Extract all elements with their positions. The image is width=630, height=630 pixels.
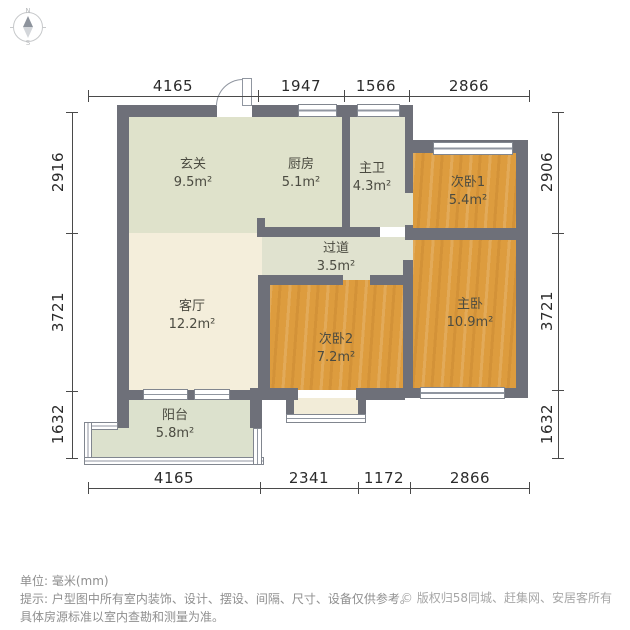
copyright-notice: © 版权归58同城、赶集网、安居客所有: [401, 589, 612, 606]
room-name: 厨房: [261, 156, 341, 174]
dim-tick: [260, 482, 261, 494]
room-name: 次卧2: [296, 331, 376, 349]
room-label-master: 主卧 10.9m²: [430, 296, 510, 332]
dim-tick: [88, 482, 89, 494]
wall-right: [516, 143, 528, 398]
hint-note-line2: 具体房源标准以室内查勘和测量为准。: [20, 608, 224, 625]
balcony-floor-ext: [90, 428, 129, 458]
dim-line-bottom: [88, 488, 530, 489]
dim-right-1: 2906: [539, 132, 555, 212]
room-name: 主卫: [332, 160, 412, 178]
master-bedroom-window: [420, 387, 505, 399]
dim-line-left: [72, 112, 73, 458]
wall-bedroom2-master-divider: [403, 260, 413, 390]
wall-living-bottom: [117, 390, 262, 400]
room-label-entry: 玄关 9.5m²: [153, 156, 233, 192]
dim-right-3: 1632: [539, 384, 555, 464]
wall-hall-south-left: [258, 275, 343, 285]
bedroom1-window: [433, 142, 513, 155]
room-label-kitchen: 厨房 5.1m²: [261, 156, 341, 192]
dim-top-3: 1566: [336, 77, 416, 95]
dim-tick: [66, 233, 78, 234]
wall-kitchen-bottom: [257, 227, 350, 237]
compass-south-label: S: [10, 39, 46, 47]
entrance-door-arc: [216, 79, 243, 106]
room-name: 主卧: [430, 296, 510, 314]
room-name: 过道: [296, 240, 376, 258]
dim-line-right: [558, 112, 559, 458]
room-label-bedroom1: 次卧1 5.4m²: [428, 174, 508, 210]
balcony-rail-bottom: [84, 457, 264, 465]
room-area: 10.9m²: [430, 314, 510, 332]
dim-top-1: 4165: [133, 77, 213, 95]
dim-bottom-4: 2866: [430, 469, 510, 487]
room-name: 次卧1: [428, 174, 508, 192]
dim-tick: [66, 391, 78, 392]
dim-tick: [88, 90, 89, 102]
dim-right-2: 3721: [539, 271, 555, 351]
wall-bath-bottom: [342, 227, 380, 237]
dim-tick: [258, 90, 259, 102]
dim-left-3: 1632: [50, 384, 66, 464]
bay-window: [286, 414, 366, 423]
dim-bottom-3: 1172: [344, 469, 424, 487]
wall-bedroom2-left: [258, 275, 270, 390]
room-name: 阳台: [135, 407, 215, 425]
room-area: 9.5m²: [153, 174, 233, 192]
dim-tick: [529, 482, 530, 494]
compass-east-tick: [42, 27, 46, 28]
compass-north-label: N: [10, 7, 46, 15]
room-area: 5.8m²: [135, 425, 215, 443]
room-label-bathroom: 主卫 4.3m²: [332, 160, 412, 196]
room-label-hallway: 过道 3.5m²: [296, 240, 376, 276]
dim-bottom-1: 4165: [134, 469, 214, 487]
dim-line-top: [88, 96, 530, 97]
dim-tick: [529, 90, 530, 102]
dim-tick: [552, 112, 564, 113]
kitchen-window: [298, 104, 337, 117]
room-area: 5.1m²: [261, 174, 341, 192]
room-area: 7.2m²: [296, 349, 376, 367]
wall-kitchen-bottom-hook: [257, 218, 265, 228]
dim-left-2: 3721: [50, 272, 66, 352]
room-area: 12.2m²: [152, 316, 232, 334]
floor-plan-page: { "plan": { "rooms": [ {"name": "玄关", "a…: [0, 0, 630, 630]
copyright-icon: ©: [401, 591, 413, 605]
copyright-text: 版权归58同城、赶集网、安居客所有: [417, 591, 612, 605]
bathroom-window: [357, 104, 400, 117]
room-label-balcony: 阳台 5.8m²: [135, 407, 215, 443]
dim-top-2: 1947: [261, 77, 341, 95]
entrance-door-leaf: [242, 78, 252, 106]
dim-left-1: 2916: [50, 132, 66, 212]
room-label-living: 客厅 12.2m²: [152, 298, 232, 334]
room-area: 3.5m²: [296, 258, 376, 276]
dim-bottom-2: 2341: [269, 469, 349, 487]
compass-needle-north: [23, 16, 33, 27]
room-name: 玄关: [153, 156, 233, 174]
dim-top-4: 2866: [429, 77, 509, 95]
wall-bath-right-lower: [405, 225, 413, 240]
dim-tick: [66, 458, 78, 459]
room-label-bedroom2: 次卧2 7.2m²: [296, 331, 376, 367]
wall-left: [117, 105, 129, 428]
compass-west-tick: [10, 27, 14, 28]
room-area: 4.3m²: [332, 178, 412, 196]
dim-tick: [552, 233, 564, 234]
living-balcony-door-window: [143, 389, 188, 400]
hint-note-line1: 提示: 户型图中所有室内装饰、设计、摆设、间隔、尺寸、设备仅供参考。: [20, 590, 412, 607]
room-name: 客厅: [152, 298, 232, 316]
living-balcony-window: [194, 389, 230, 400]
unit-note: 单位: 毫米(mm): [20, 572, 109, 589]
compass-icon: N S: [10, 9, 46, 45]
entrance-door-opening: [217, 105, 252, 117]
balcony-rail-right: [253, 428, 262, 465]
dim-tick: [66, 112, 78, 113]
compass-needle-south: [23, 27, 33, 38]
wall-bedrooms-divider: [413, 228, 516, 240]
room-area: 5.4m²: [428, 192, 508, 210]
